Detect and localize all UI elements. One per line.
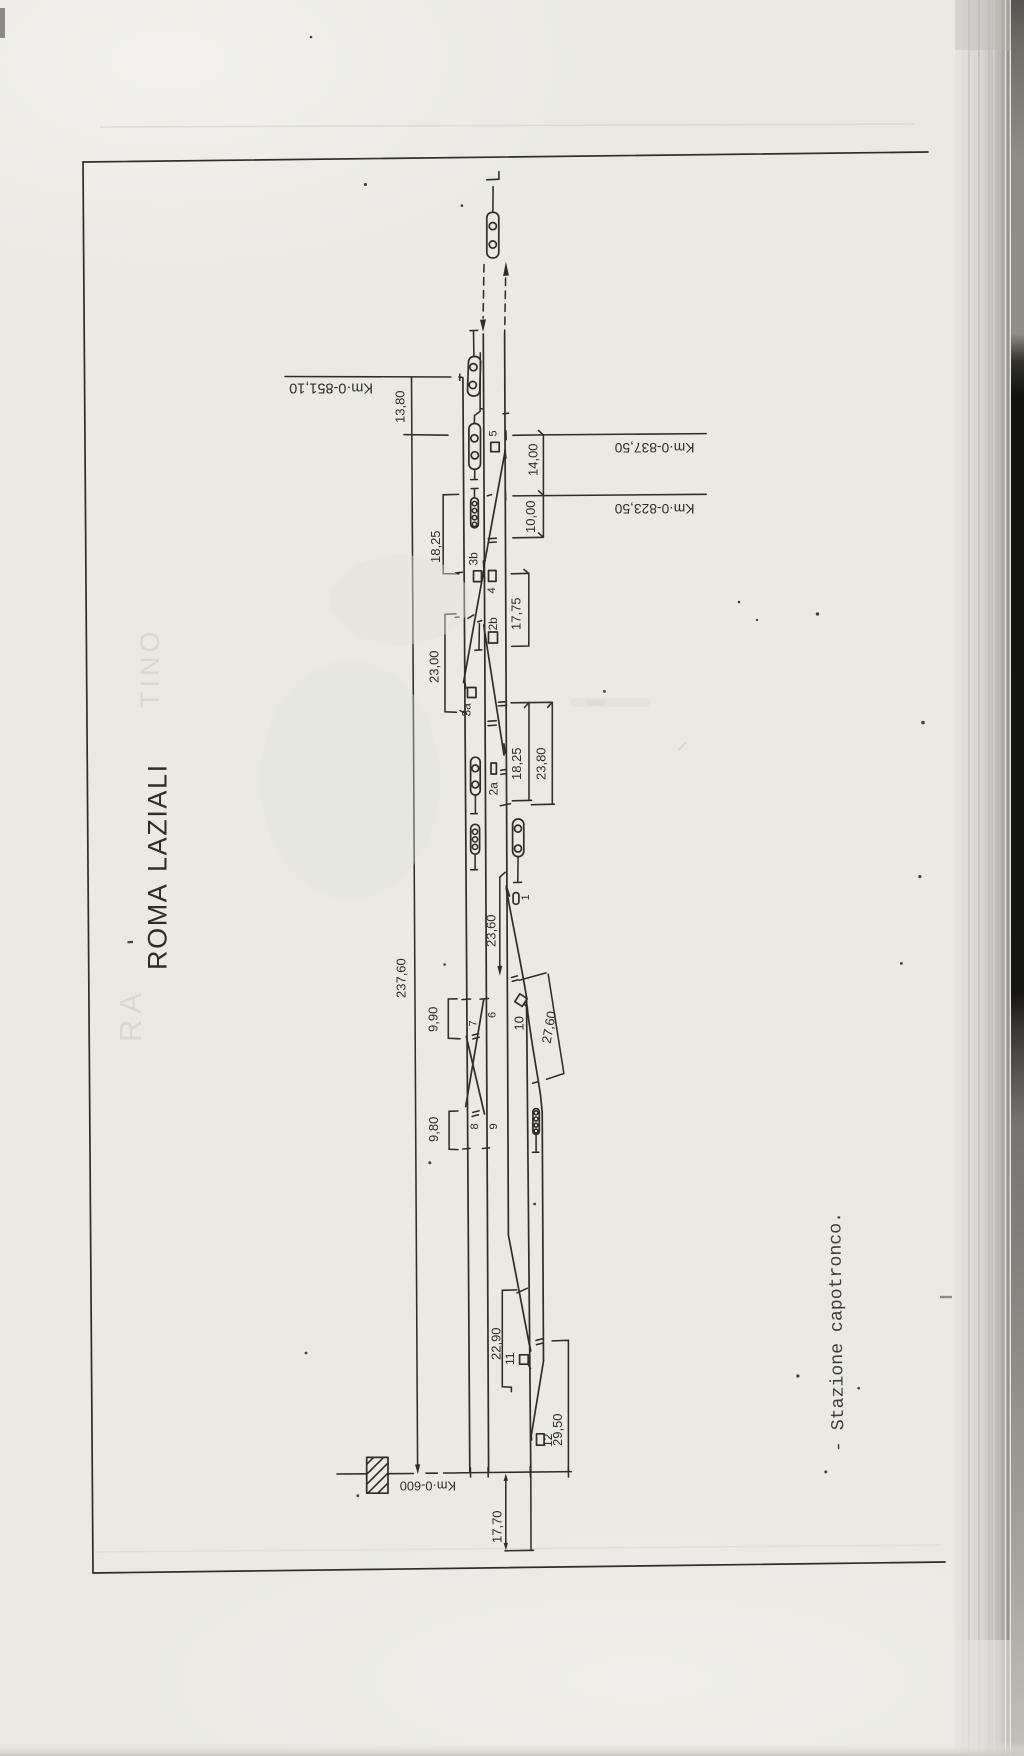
svg-text:14,00: 14,00 [526,443,541,476]
svg-text:22,90: 22,90 [489,1327,504,1360]
svg-text:TINO: TINO [135,628,165,709]
svg-text:29,50: 29,50 [550,1413,565,1446]
svg-text:2b: 2b [486,617,500,631]
svg-text:17,75: 17,75 [509,597,524,630]
svg-text:Km·0-851,10: Km·0-851,10 [289,380,373,396]
svg-text:23,60: 23,60 [484,914,499,947]
svg-text:Km·0-837,50: Km·0-837,50 [614,440,694,455]
svg-text:Km·0-823,50: Km·0-823,50 [614,501,694,516]
svg-text:5: 5 [487,430,499,436]
svg-text:3b: 3b [467,552,481,566]
svg-text:10,00: 10,00 [523,500,538,533]
svg-text:9: 9 [488,1123,500,1129]
svg-text:18,25: 18,25 [509,747,524,780]
svg-text:4: 4 [486,587,498,593]
svg-text:8: 8 [469,1123,481,1129]
svg-text:237,60: 237,60 [394,958,409,998]
svg-text:23,00: 23,00 [427,650,442,683]
svg-text:17,70: 17,70 [490,1510,505,1543]
svg-text:Km·0-600: Km·0-600 [400,1479,456,1494]
svg-text:10: 10 [511,1016,526,1030]
svg-text:9,80: 9,80 [426,1117,441,1142]
svg-text:6: 6 [486,1012,498,1018]
svg-text:- Stazione capotronco.: - Stazione capotronco. [826,1212,849,1452]
svg-text:13,80: 13,80 [393,390,408,423]
svg-text:RA: RA [113,987,148,1042]
svg-text:23,80: 23,80 [534,747,549,780]
svg-text:2a: 2a [487,782,501,796]
svg-text:18,25: 18,25 [428,530,443,563]
svg-text:ROMA LAZIALI: ROMA LAZIALI [143,763,173,970]
svg-text:9,90: 9,90 [426,1007,441,1032]
svg-text:7: 7 [468,1020,480,1026]
svg-text:11: 11 [503,1352,517,1365]
svg-text:1: 1 [520,894,532,900]
